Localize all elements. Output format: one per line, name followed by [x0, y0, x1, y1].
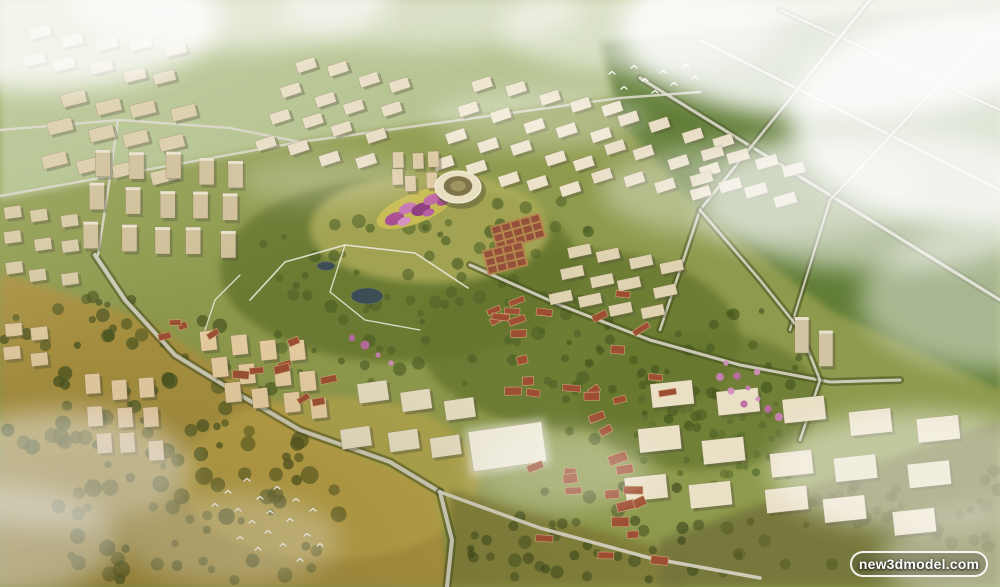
- watermark-pill: new3dmodel.com: [850, 551, 988, 577]
- masterplan-rendering: new3dmodel.com: [0, 0, 1000, 587]
- watermark-text: new3dmodel.com: [859, 556, 979, 572]
- corner-vignette-overlay: [0, 0, 1000, 587]
- aerial-city-scene: [0, 0, 1000, 587]
